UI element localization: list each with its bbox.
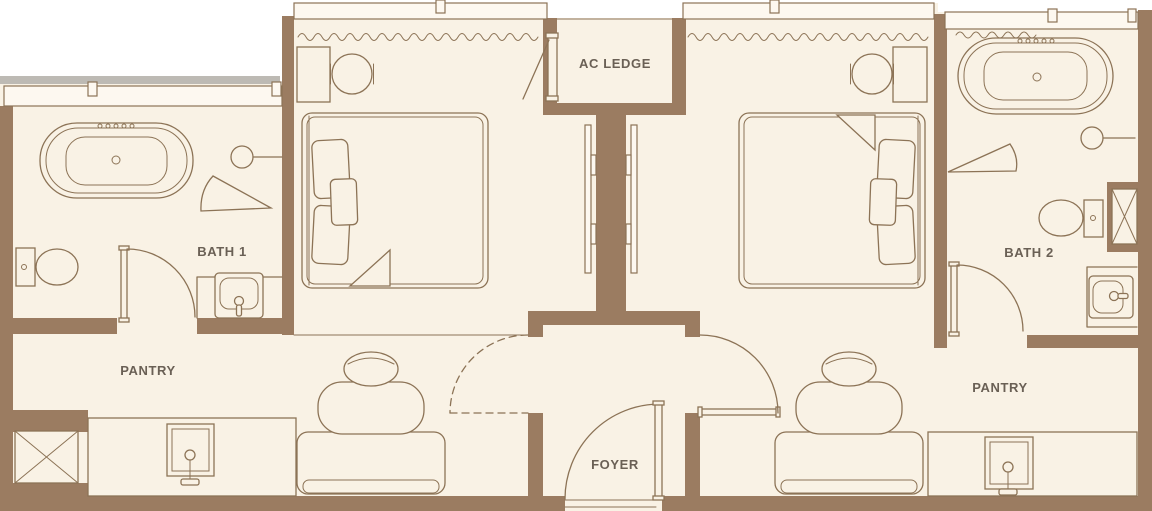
kitchen-sink-right bbox=[985, 437, 1033, 495]
service-shaft-right bbox=[1112, 189, 1137, 244]
foyer-label: FOYER bbox=[591, 457, 639, 472]
pillow bbox=[330, 179, 358, 226]
toilet-left bbox=[16, 248, 78, 286]
toilet-right bbox=[1039, 200, 1103, 237]
window-bath2 bbox=[945, 12, 1138, 29]
service-shaft-left bbox=[15, 431, 78, 483]
bathtub-right bbox=[958, 38, 1113, 114]
kitchen-sink-left bbox=[167, 424, 214, 485]
stool-right bbox=[851, 54, 894, 94]
bathtub-left bbox=[40, 123, 193, 198]
ac-ledge-label: AC LEDGE bbox=[579, 56, 651, 71]
floor-plan: AC LEDGE bbox=[0, 0, 1152, 511]
window-mullion bbox=[1048, 9, 1057, 22]
boundary-shadow-strip bbox=[0, 76, 280, 84]
floor-plan-svg: AC LEDGE bbox=[0, 0, 1152, 511]
window-bedroom-left bbox=[294, 3, 547, 19]
window-mullion bbox=[436, 0, 445, 13]
window-mullion bbox=[272, 82, 281, 96]
stool-left bbox=[331, 54, 374, 94]
pantry-left-label: PANTRY bbox=[120, 363, 176, 378]
desk-right bbox=[893, 47, 927, 102]
vanity-sink-right bbox=[1087, 267, 1137, 327]
window-mullion bbox=[770, 0, 779, 13]
bed-left bbox=[302, 113, 488, 288]
bath1-label: BATH 1 bbox=[197, 244, 247, 259]
window-left-unit bbox=[4, 86, 282, 106]
window-mullion bbox=[1128, 9, 1136, 22]
bed-right bbox=[739, 113, 925, 288]
ac-access-panel bbox=[548, 36, 557, 98]
desk-left bbox=[297, 47, 330, 102]
pillow bbox=[869, 179, 897, 226]
window-bedroom-right bbox=[683, 3, 934, 19]
window-mullion bbox=[88, 82, 97, 96]
bath2-label: BATH 2 bbox=[1004, 245, 1054, 260]
pantry-right-label: PANTRY bbox=[972, 380, 1028, 395]
